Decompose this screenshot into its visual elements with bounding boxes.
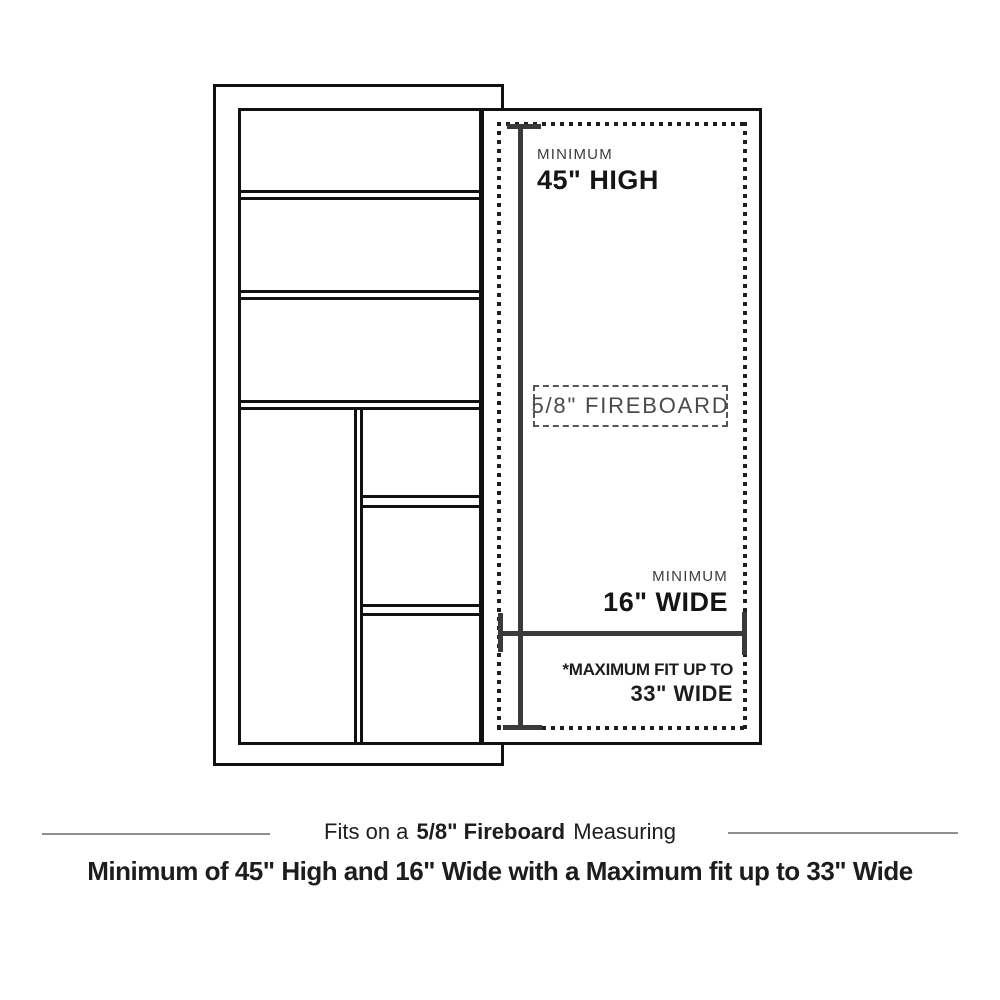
shelf-right-1 (363, 495, 479, 508)
caption-line1-bold: 5/8" Fireboard (417, 819, 566, 844)
height-value-label: 45" HIGH (537, 165, 659, 196)
width-measure-right-cap (742, 612, 747, 655)
caption-line2: Minimum of 45" High and 16" Wide with a … (0, 856, 1000, 887)
shelf-right-2 (363, 604, 479, 616)
fireboard-label: 5/8" FIREBOARD (531, 393, 729, 419)
shelf-top-2 (241, 290, 479, 300)
shelf-top-1 (241, 190, 479, 200)
vertical-divider (354, 410, 363, 742)
shelf-top-3 (241, 400, 479, 410)
height-measurement-label: MINIMUM 45" HIGH (537, 146, 659, 196)
fireboard-fit-diagram: MINIMUM 45" HIGH 5/8" FIREBOARD MINIMUM … (0, 0, 1000, 1000)
height-minimum-label: MINIMUM (537, 146, 613, 163)
safe-door-panel: MINIMUM 45" HIGH 5/8" FIREBOARD MINIMUM … (481, 108, 762, 745)
max-fit-prefix-label: *MAXIMUM FIT UP TO (562, 660, 733, 680)
max-fit-label: *MAXIMUM FIT UP TO 33" WIDE (562, 660, 733, 706)
caption-line1: Fits on a 5/8" Fireboard Measuring (0, 819, 1000, 845)
height-measure-bottom-cap (503, 725, 542, 730)
width-measure-line (500, 631, 746, 636)
max-fit-value-label: 33" WIDE (631, 681, 733, 706)
fireboard-label-box: 5/8" FIREBOARD (533, 385, 728, 427)
width-measurement-label: MINIMUM 16" WIDE (603, 568, 728, 618)
height-measure-line (518, 124, 523, 730)
height-measure-top-cap (507, 124, 541, 129)
width-value-label: 16" WIDE (603, 587, 728, 618)
width-measure-left-cap (498, 613, 503, 652)
caption-line1-prefix: Fits on a (324, 819, 408, 844)
caption-line1-suffix: Measuring (573, 819, 676, 844)
width-minimum-label: MINIMUM (652, 568, 728, 585)
